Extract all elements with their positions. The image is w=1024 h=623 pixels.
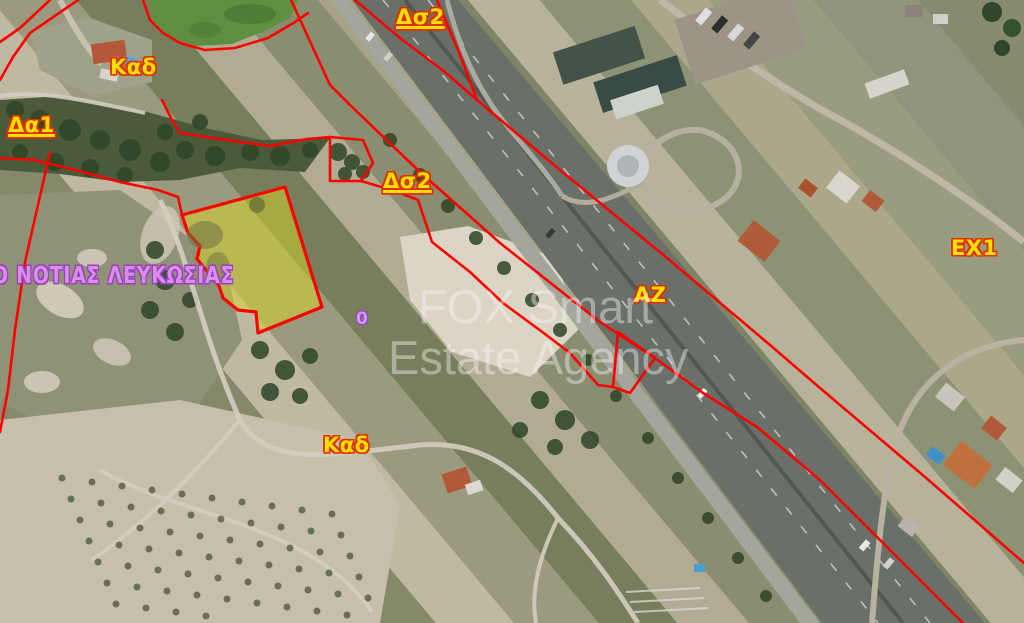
zone-label-ex1: ΕΧ1 xyxy=(951,238,998,259)
watermark: FOX Smart Estate Agency xyxy=(388,281,688,383)
zone-label-da1: Δα1 xyxy=(8,115,55,136)
satellite-zoning-map[interactable]: ΚαδΔα1Δσ2Δσ2ΑΖΕΧ1Καδ Ο ΝΟΤΙΑΣ ΛΕΥΚΩΣΙΑΣ … xyxy=(0,0,1024,623)
watermark-line1: FOX Smart xyxy=(418,281,688,332)
zone-label-ds2-mid: Δσ2 xyxy=(383,171,432,192)
municipality-boundary-label: Ο ΝΟΤΙΑΣ ΛΕΥΚΩΣΙΑΣ xyxy=(0,263,234,289)
zone-label-kad-north: Καδ xyxy=(110,57,157,78)
zone-label-ds2-north: Δσ2 xyxy=(396,7,445,28)
swimming-pool xyxy=(694,564,705,572)
watermark-line2: Estate Agency xyxy=(388,332,688,383)
zone-label-kad-south: Καδ xyxy=(323,435,370,456)
parcel-number-label: 0 xyxy=(356,309,368,329)
